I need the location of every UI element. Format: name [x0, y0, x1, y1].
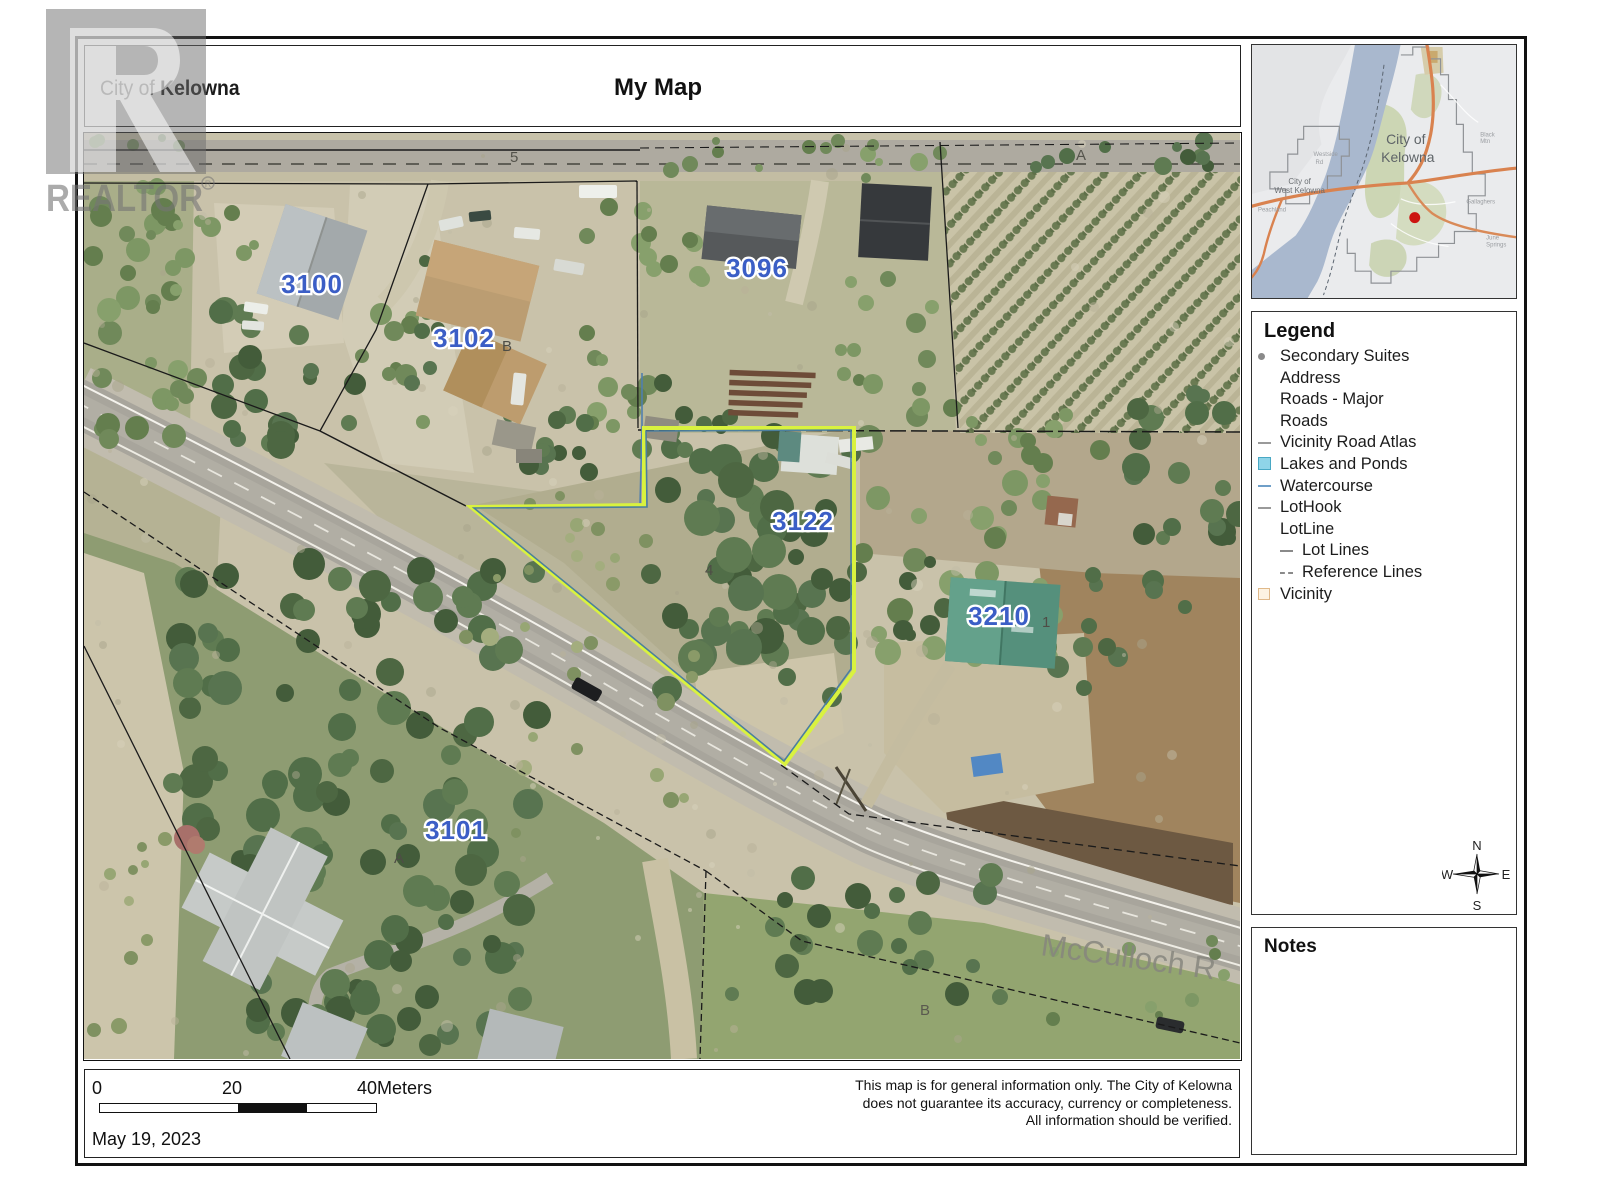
svg-text:3122: 3122 — [772, 506, 834, 536]
svg-text:Gallaghers: Gallaghers — [1466, 200, 1495, 206]
svg-text:3096: 3096 — [726, 253, 788, 283]
svg-text:B: B — [920, 1002, 930, 1019]
svg-text:3100: 3100 — [281, 269, 343, 299]
svg-text:Black: Black — [1480, 132, 1495, 138]
svg-text:E: E — [1502, 867, 1511, 882]
svg-text:Kelowna: Kelowna — [1381, 149, 1435, 165]
svg-text:June: June — [1486, 235, 1500, 241]
svg-text:N: N — [1472, 838, 1481, 853]
svg-text:3102: 3102 — [433, 323, 495, 353]
svg-text:Rd: Rd — [1316, 160, 1324, 166]
svg-text:A: A — [394, 850, 404, 867]
svg-text:4: 4 — [705, 562, 713, 579]
svg-text:1: 1 — [1042, 614, 1050, 631]
svg-text:City of: City of — [1288, 177, 1311, 186]
svg-text:A: A — [1076, 147, 1086, 164]
svg-text:Mtn: Mtn — [1480, 139, 1490, 145]
svg-text:City of: City of — [1386, 131, 1425, 147]
svg-text:Peachland: Peachland — [1258, 208, 1286, 214]
svg-text:W: W — [1442, 867, 1454, 882]
svg-text:S: S — [1473, 898, 1482, 913]
svg-text:B: B — [502, 338, 512, 355]
svg-text:West Kelowna: West Kelowna — [1274, 186, 1325, 195]
svg-text:3210: 3210 — [968, 601, 1030, 631]
svg-text:5: 5 — [510, 149, 518, 166]
svg-text:Springs: Springs — [1486, 242, 1506, 248]
svg-text:3101: 3101 — [425, 815, 487, 845]
svg-text:Westside: Westside — [1314, 152, 1339, 158]
